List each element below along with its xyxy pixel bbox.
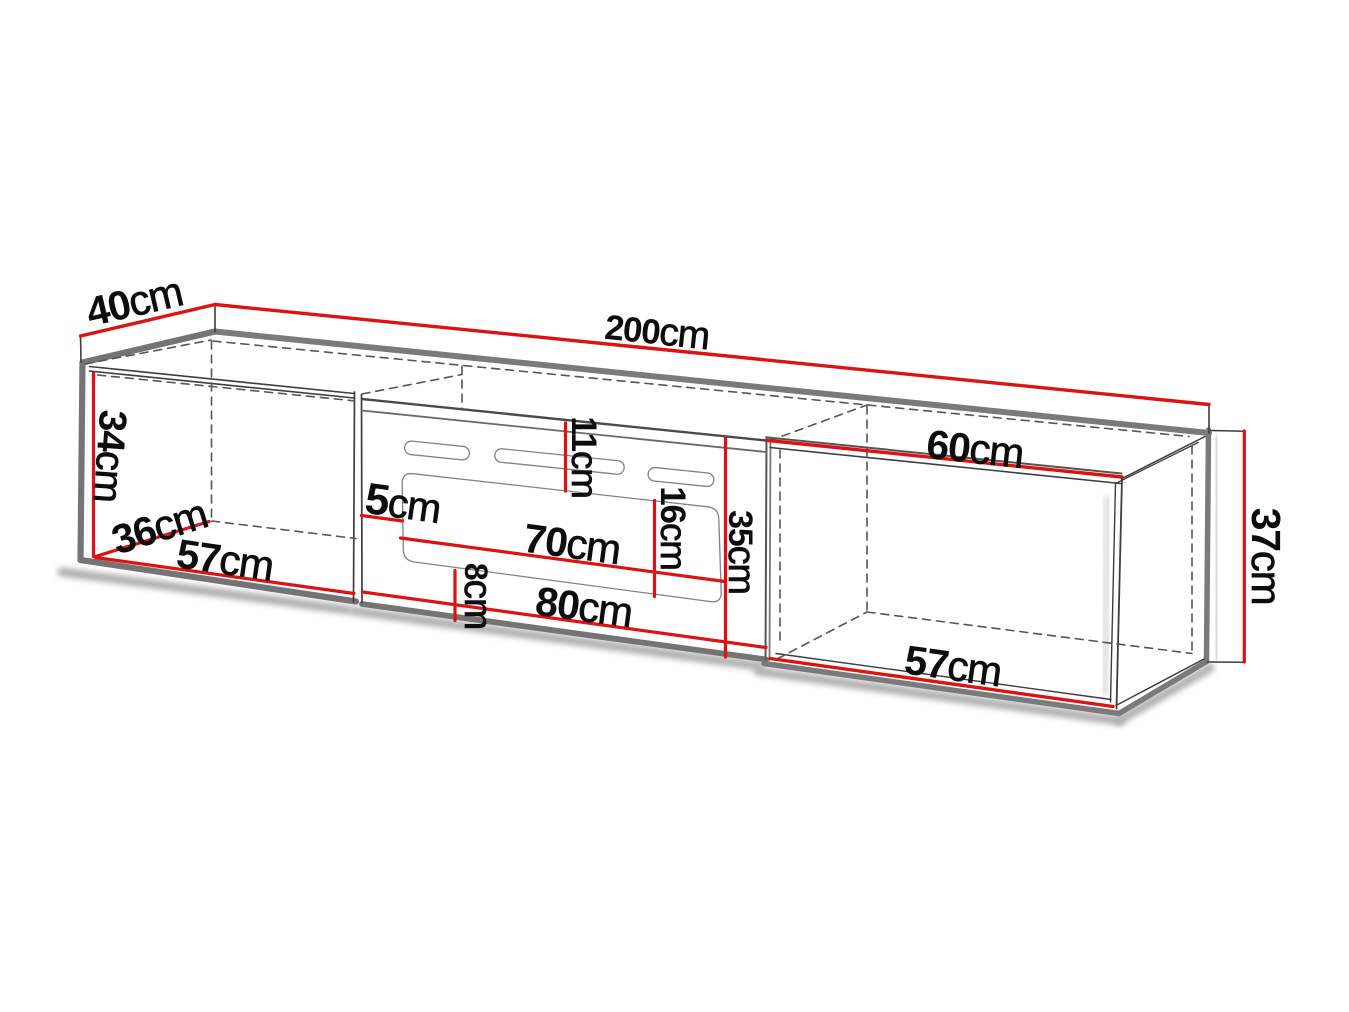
svg-text:8cm: 8cm (456, 563, 499, 629)
svg-text:37cm: 37cm (1243, 508, 1290, 605)
svg-text:34cm: 34cm (85, 409, 135, 504)
svg-text:60cm: 60cm (924, 420, 1025, 477)
svg-text:16cm: 16cm (653, 486, 694, 569)
svg-text:35cm: 35cm (720, 510, 762, 594)
svg-text:11cm: 11cm (564, 416, 605, 498)
